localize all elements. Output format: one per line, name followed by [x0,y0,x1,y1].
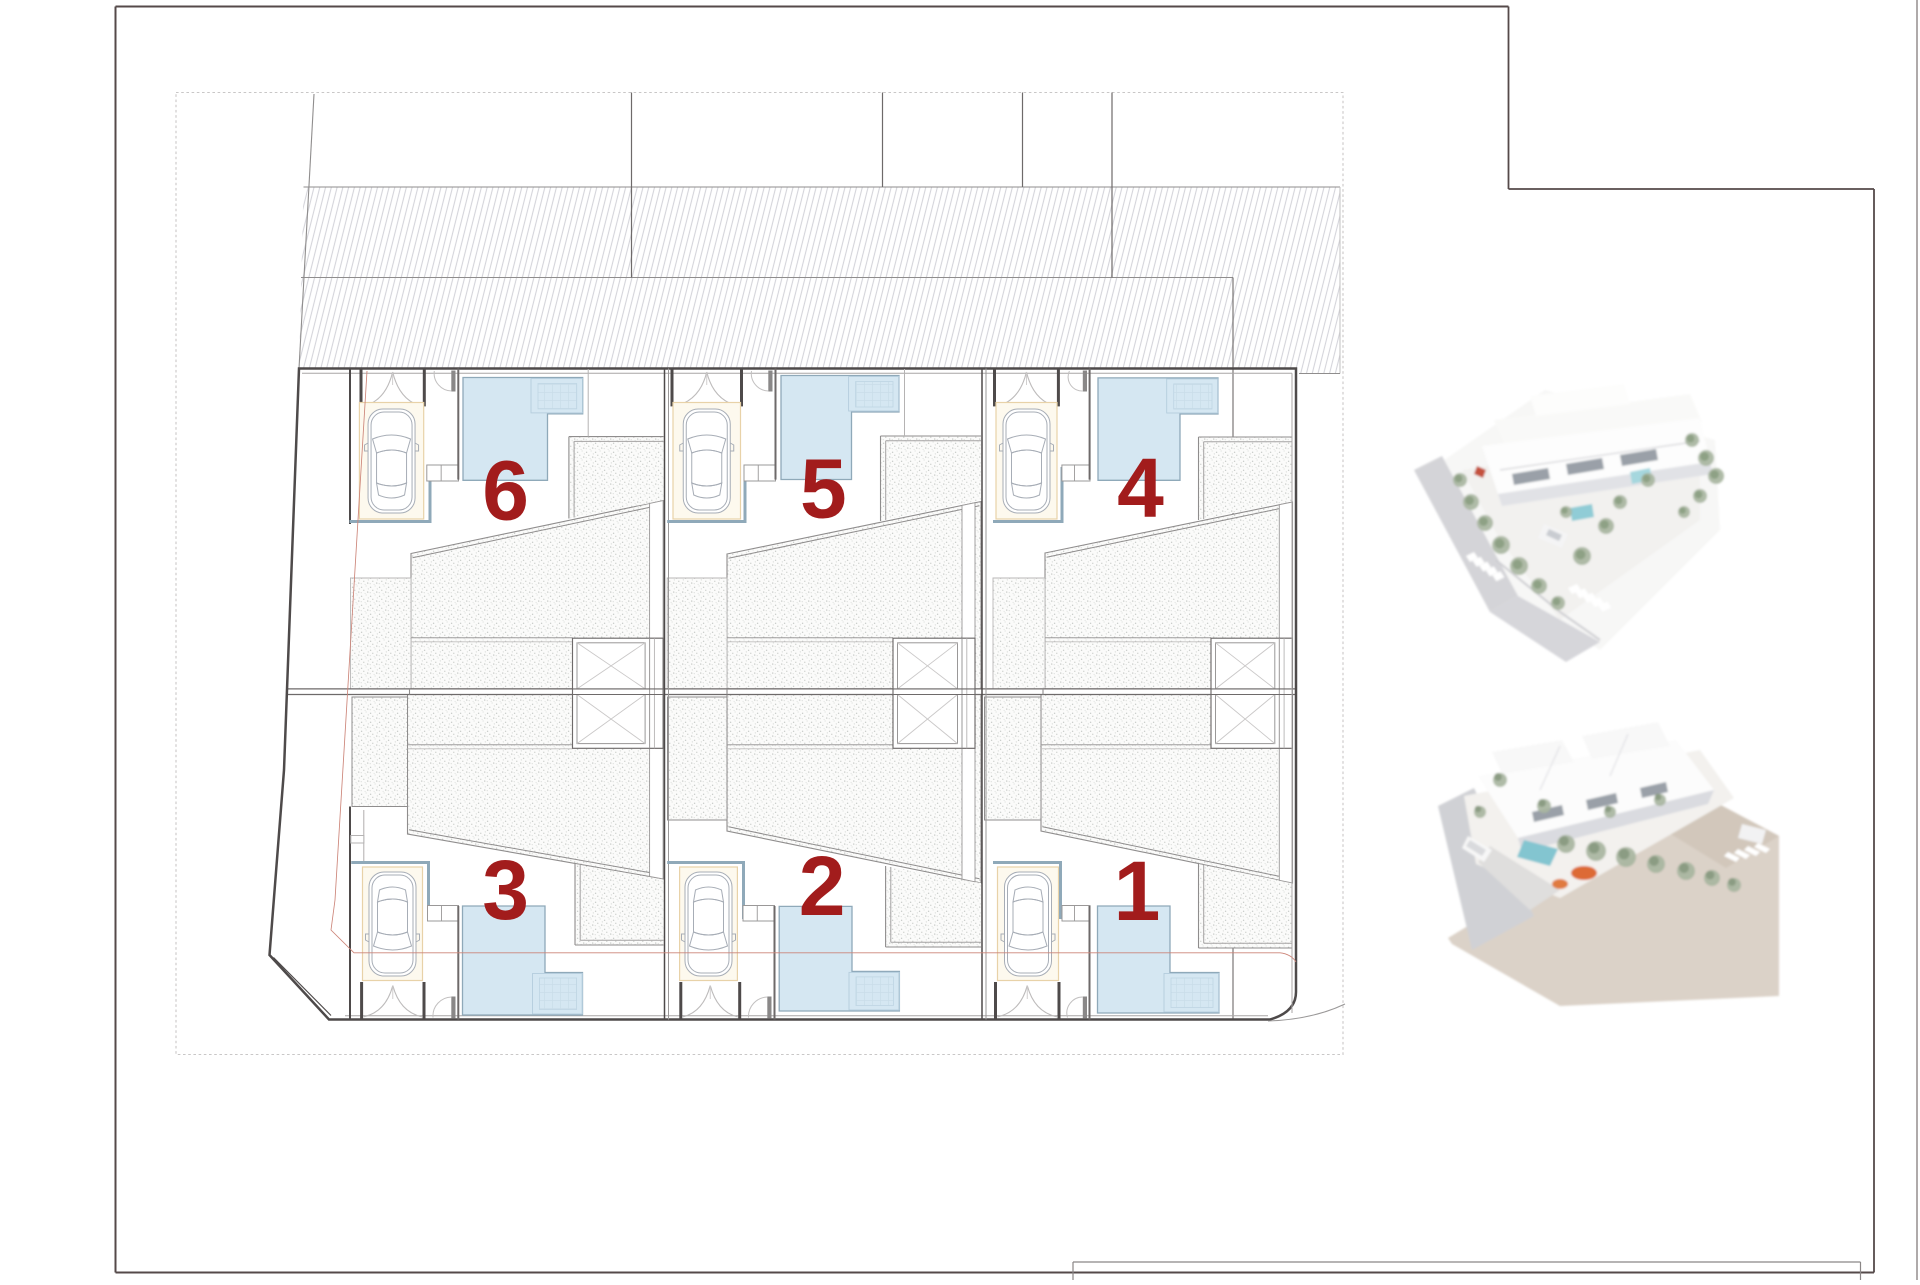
svg-text:3: 3 [482,843,529,937]
svg-text:6: 6 [482,444,529,538]
svg-text:5: 5 [800,442,847,536]
svg-text:4: 4 [1117,441,1164,535]
svg-text:2: 2 [799,839,846,933]
svg-text:1: 1 [1114,844,1161,938]
